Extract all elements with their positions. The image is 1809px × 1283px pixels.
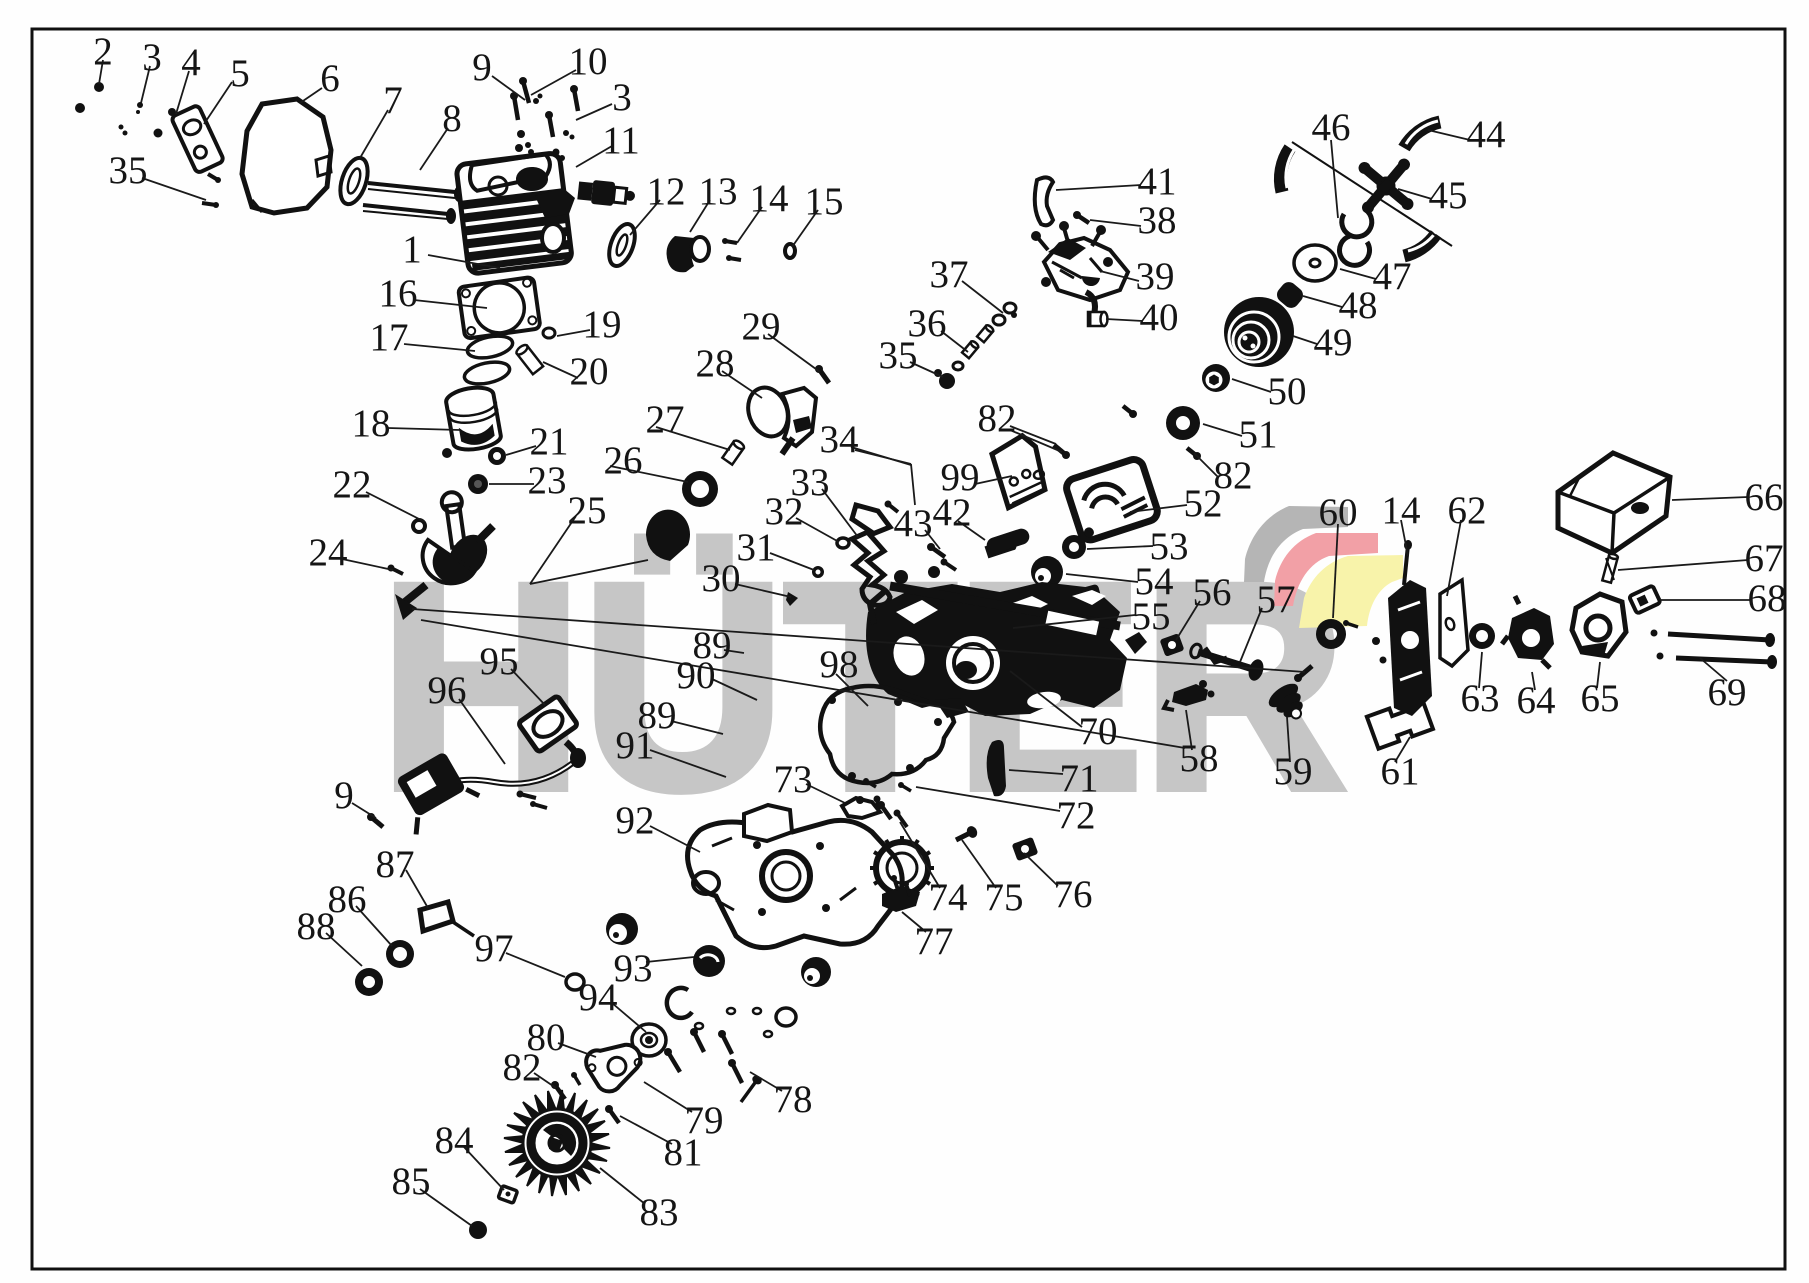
svg-text:44: 44: [1467, 113, 1506, 156]
svg-text:29: 29: [742, 305, 781, 348]
svg-text:12: 12: [647, 170, 686, 213]
svg-text:65: 65: [1581, 677, 1620, 720]
svg-text:75: 75: [985, 876, 1024, 919]
svg-text:67: 67: [1745, 537, 1784, 580]
svg-text:69: 69: [1708, 671, 1747, 714]
svg-text:62: 62: [1448, 489, 1487, 532]
svg-text:82: 82: [503, 1046, 542, 1089]
svg-text:41: 41: [1138, 160, 1177, 203]
svg-text:88: 88: [297, 905, 336, 948]
svg-text:9: 9: [472, 46, 492, 89]
svg-text:63: 63: [1461, 677, 1500, 720]
svg-text:73: 73: [774, 758, 813, 801]
svg-text:49: 49: [1314, 321, 1353, 364]
svg-text:87: 87: [376, 843, 415, 886]
svg-text:19: 19: [583, 303, 622, 346]
svg-text:83: 83: [640, 1191, 679, 1234]
svg-text:90: 90: [677, 654, 716, 697]
svg-text:34: 34: [820, 418, 859, 461]
svg-text:4: 4: [181, 41, 201, 84]
svg-text:3: 3: [142, 36, 162, 79]
svg-text:3: 3: [612, 76, 632, 119]
svg-text:30: 30: [702, 557, 741, 600]
svg-text:81: 81: [664, 1131, 703, 1174]
svg-text:57: 57: [1257, 578, 1296, 621]
svg-text:84: 84: [435, 1119, 474, 1162]
svg-text:97: 97: [475, 927, 514, 970]
svg-text:40: 40: [1140, 296, 1179, 339]
svg-text:6: 6: [320, 57, 340, 100]
svg-text:78: 78: [774, 1078, 813, 1121]
svg-text:77: 77: [915, 920, 954, 963]
svg-text:21: 21: [530, 420, 569, 463]
svg-text:37: 37: [930, 253, 969, 296]
svg-text:91: 91: [616, 724, 655, 767]
svg-text:22: 22: [333, 463, 372, 506]
svg-text:28: 28: [696, 342, 735, 385]
svg-text:14: 14: [750, 177, 789, 220]
svg-text:96: 96: [428, 669, 467, 712]
svg-text:58: 58: [1180, 737, 1219, 780]
svg-text:35: 35: [109, 149, 148, 192]
svg-text:72: 72: [1057, 794, 1096, 837]
svg-text:56: 56: [1193, 571, 1232, 614]
svg-text:10: 10: [569, 40, 608, 83]
svg-text:74: 74: [929, 876, 968, 919]
svg-text:50: 50: [1268, 370, 1307, 413]
svg-text:51: 51: [1239, 413, 1278, 456]
svg-text:38: 38: [1138, 199, 1177, 242]
svg-text:23: 23: [528, 459, 567, 502]
svg-text:31: 31: [737, 526, 776, 569]
svg-text:85: 85: [392, 1160, 431, 1203]
svg-text:24: 24: [309, 531, 348, 574]
svg-text:17: 17: [370, 316, 409, 359]
svg-text:64: 64: [1517, 679, 1556, 722]
svg-text:9: 9: [334, 774, 354, 817]
svg-text:82: 82: [978, 397, 1017, 440]
svg-text:39: 39: [1136, 255, 1175, 298]
svg-text:2: 2: [93, 30, 113, 73]
svg-text:93: 93: [614, 947, 653, 990]
svg-text:1: 1: [402, 228, 422, 271]
svg-text:66: 66: [1745, 476, 1784, 519]
svg-text:60: 60: [1319, 491, 1358, 534]
svg-text:26: 26: [604, 439, 643, 482]
svg-text:52: 52: [1184, 482, 1223, 525]
svg-text:45: 45: [1429, 174, 1468, 217]
svg-text:11: 11: [602, 119, 640, 162]
svg-text:14: 14: [1382, 489, 1421, 532]
svg-text:7: 7: [383, 79, 403, 122]
svg-text:76: 76: [1054, 873, 1093, 916]
svg-text:94: 94: [579, 976, 618, 1019]
svg-text:98: 98: [820, 643, 859, 686]
svg-text:13: 13: [699, 170, 738, 213]
svg-text:15: 15: [805, 180, 844, 223]
svg-text:25: 25: [568, 489, 607, 532]
svg-text:46: 46: [1312, 106, 1351, 149]
svg-text:95: 95: [480, 640, 519, 683]
svg-text:8: 8: [442, 97, 462, 140]
svg-text:5: 5: [230, 52, 250, 95]
svg-text:59: 59: [1274, 750, 1313, 793]
svg-text:47: 47: [1373, 255, 1412, 298]
svg-text:18: 18: [352, 402, 391, 445]
svg-text:61: 61: [1381, 750, 1420, 793]
svg-text:43: 43: [894, 502, 933, 545]
svg-text:35: 35: [879, 334, 918, 377]
svg-text:70: 70: [1079, 710, 1118, 753]
svg-text:68: 68: [1748, 577, 1787, 620]
svg-text:16: 16: [379, 272, 418, 315]
svg-text:20: 20: [570, 350, 609, 393]
svg-text:42: 42: [933, 491, 972, 534]
svg-text:55: 55: [1132, 595, 1171, 638]
svg-text:92: 92: [616, 799, 655, 842]
svg-text:27: 27: [646, 398, 685, 441]
